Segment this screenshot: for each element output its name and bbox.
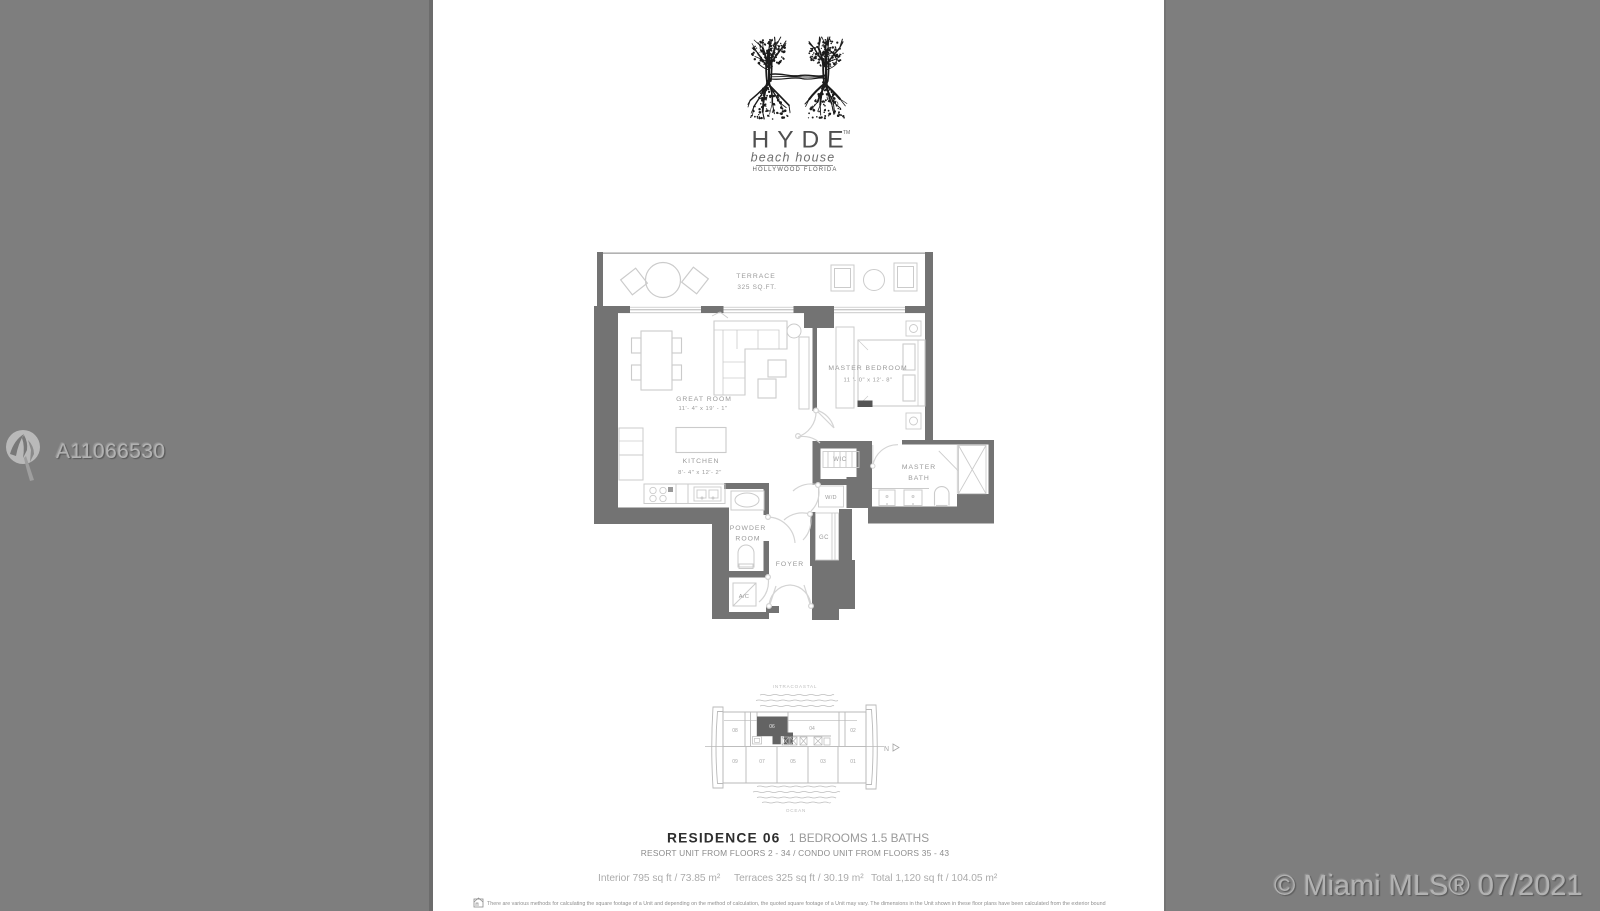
svg-text:OCEAN: OCEAN [786,808,806,813]
svg-text:1 BEDROOMS 1.5 BATHS: 1 BEDROOMS 1.5 BATHS [789,831,929,845]
svg-text:GREAT ROOM: GREAT ROOM [676,396,732,403]
svg-text:09: 09 [732,759,738,765]
svg-text:KITCHEN: KITCHEN [683,458,720,465]
svg-text:TM: TM [843,130,850,136]
svg-text:GC: GC [819,535,829,541]
svg-text:RESIDENCE 06: RESIDENCE 06 [667,831,780,846]
svg-text:FOYER: FOYER [776,561,804,568]
svg-text:Terraces 325 sq ft / 30.19 m²: Terraces 325 sq ft / 30.19 m² [734,873,864,884]
svg-text:01: 01 [850,759,856,765]
svg-text:Total 1,120 sq ft / 104.05 m²: Total 1,120 sq ft / 104.05 m² [871,873,998,884]
svg-text:W/D: W/D [825,495,837,501]
svg-text:Interior 795 sq ft / 73.85 m²: Interior 795 sq ft / 73.85 m² [598,873,721,884]
svg-text:beach house: beach house [751,151,836,165]
svg-text:03: 03 [820,759,826,765]
svg-text:N: N [884,746,889,753]
svg-text:A/C: A/C [739,594,750,600]
svg-text:INTRACOASTAL: INTRACOASTAL [773,684,817,689]
svg-text:325 SQ.FT.: 325 SQ.FT. [737,284,776,291]
svg-text:RESORT UNIT FROM FLOORS 2 - 34: RESORT UNIT FROM FLOORS 2 - 34 / CONDO U… [641,848,950,858]
svg-text:06: 06 [769,724,775,730]
svg-text:There are various methods for: There are various methods for calculatin… [487,901,1106,907]
svg-text:BATH: BATH [908,475,930,482]
svg-text:MASTER BEDROOM: MASTER BEDROOM [828,365,907,372]
svg-text:08: 08 [732,728,738,734]
svg-text:11'- 4" x 19' - 1": 11'- 4" x 19' - 1" [678,406,727,412]
svg-text:HYDE: HYDE [752,127,852,154]
svg-text:HOLLYWOOD FLORIDA: HOLLYWOOD FLORIDA [753,167,838,173]
svg-text:07: 07 [759,759,765,765]
svg-text:TERRACE: TERRACE [736,273,775,280]
svg-text:8'- 4" x 12'- 2": 8'- 4" x 12'- 2" [678,470,722,476]
svg-text:02: 02 [850,728,856,734]
svg-text:05: 05 [790,759,796,765]
svg-text:WIC: WIC [833,457,847,463]
svg-text:11 '- 0" x 12'- 8": 11 '- 0" x 12'- 8" [843,378,892,384]
svg-text:04: 04 [809,726,815,732]
svg-text:POWDER: POWDER [730,525,767,532]
svg-text:ROOM: ROOM [735,536,760,543]
svg-text:MASTER: MASTER [902,464,936,471]
